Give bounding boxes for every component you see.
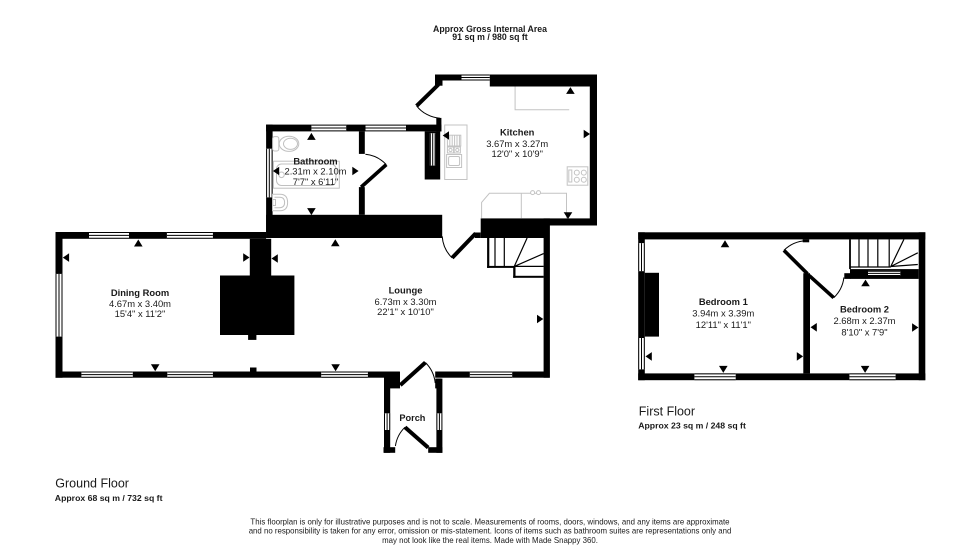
svg-text:Lounge: Lounge — [389, 285, 423, 296]
svg-text:8'10" x 7'9": 8'10" x 7'9" — [841, 327, 887, 338]
svg-text:12'11" x 11'1": 12'11" x 11'1" — [696, 319, 751, 330]
svg-text:Ground Floor: Ground Floor — [55, 477, 129, 491]
svg-text:Porch: Porch — [399, 413, 425, 423]
svg-text:3.94m x 3.39m: 3.94m x 3.39m — [692, 307, 754, 318]
svg-text:91 sq m / 980 sq ft: 91 sq m / 980 sq ft — [452, 32, 527, 42]
svg-text:Dining Room: Dining Room — [111, 287, 169, 298]
svg-text:4.67m x 3.40m: 4.67m x 3.40m — [109, 298, 171, 309]
svg-text:7'7" x 6'11": 7'7" x 6'11" — [293, 176, 339, 187]
svg-text:22'1" x 10'10": 22'1" x 10'10" — [377, 306, 434, 317]
svg-text:This floorplan is only for ill: This floorplan is only for illustrative … — [250, 517, 730, 526]
svg-text:First Floor: First Floor — [639, 404, 695, 418]
svg-text:Approx 23 sq m / 248 sq ft: Approx 23 sq m / 248 sq ft — [638, 421, 746, 431]
svg-text:may not look like the real ite: may not look like the real items. Made w… — [382, 536, 598, 545]
svg-text:Bedroom 2: Bedroom 2 — [840, 303, 889, 314]
svg-text:2.31m x 2.10m: 2.31m x 2.10m — [284, 166, 346, 177]
svg-text:Kitchen: Kitchen — [500, 127, 535, 138]
svg-text:Bedroom 1: Bedroom 1 — [699, 296, 748, 307]
svg-text:15'4" x 11'2": 15'4" x 11'2" — [115, 308, 166, 319]
svg-text:Approx 68 sq m / 732 sq ft: Approx 68 sq m / 732 sq ft — [55, 493, 163, 503]
svg-text:and no responsibility is taken: and no responsibility is taken for any e… — [249, 527, 732, 536]
svg-text:12'0" x 10'9": 12'0" x 10'9" — [491, 148, 542, 159]
svg-text:2.68m x 2.37m: 2.68m x 2.37m — [833, 315, 895, 326]
